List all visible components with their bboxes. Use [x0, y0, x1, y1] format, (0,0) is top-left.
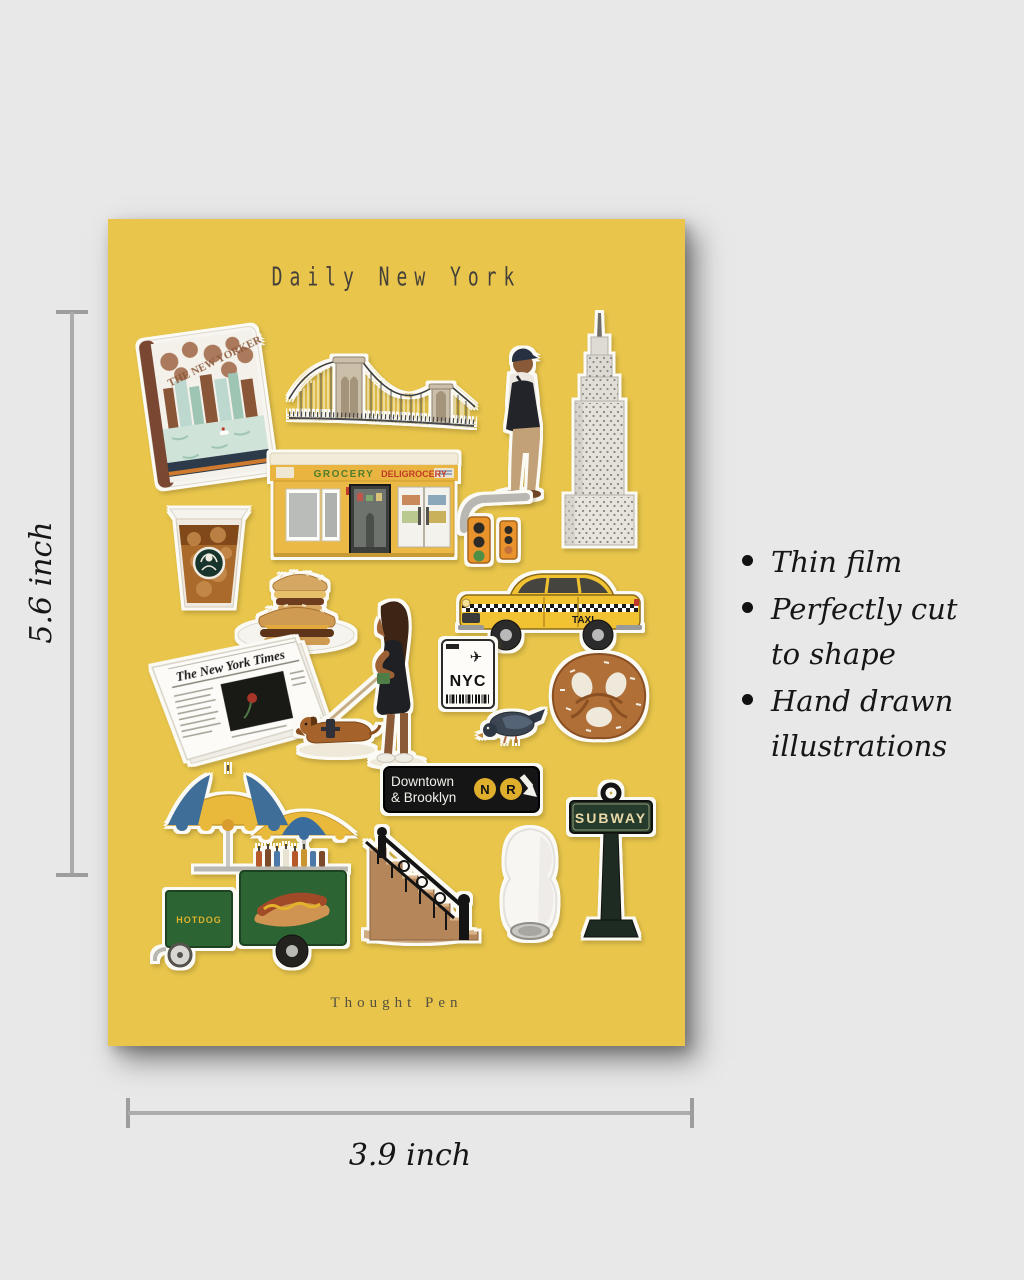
height-dimension: 5.6 inch	[0, 310, 96, 877]
deli-grocery-sign: GROCERY	[314, 469, 375, 480]
bullet-dot	[742, 555, 753, 566]
dimension-line	[70, 312, 74, 875]
feature-item: Hand drawn illustrations	[742, 679, 982, 769]
deli-grocery-sticker: GROCERY DELIGROCERY	[266, 449, 462, 563]
pretzel-sticker	[546, 648, 652, 745]
width-label: 3.9 inch	[126, 1138, 694, 1173]
dimension-line	[128, 1111, 692, 1115]
pigeon-sticker	[476, 698, 548, 745]
new-yorker-magazine-sticker: THE NEW YORKER	[136, 323, 278, 490]
feature-item: Thin film	[742, 540, 982, 585]
product-listing-image: Daily New York	[0, 0, 1024, 1280]
empire-state-building-sticker	[560, 311, 638, 549]
paper-cup-sticker	[490, 823, 570, 950]
height-label: 5.6 inch	[24, 299, 59, 866]
deli-deligrocery-sign: DELIGROCERY	[381, 469, 447, 479]
airplane-icon: ✈	[470, 648, 483, 666]
cart-hotdog-label: HOTDOG	[176, 915, 222, 925]
subway-sign-line1: Downtown	[391, 774, 454, 789]
poster-title-text: Daily New York	[272, 262, 522, 292]
brownstone-stairs-sticker	[356, 808, 482, 945]
subway-post-label: SUBWAY	[575, 810, 647, 826]
woman-walking-dog-sticker	[293, 588, 442, 770]
subway-post-sticker: SUBWAY	[560, 780, 662, 945]
route-r-bullet: R	[506, 782, 516, 797]
feature-text: Hand drawn illustrations	[771, 679, 982, 769]
feature-list: Thin film Perfectly cut to shape Hand dr…	[742, 540, 982, 771]
standing-man-sticker	[490, 345, 548, 501]
sticker-sheet-poster: Daily New York	[108, 219, 685, 1046]
dimension-cap	[690, 1098, 694, 1128]
feature-text: Thin film	[771, 540, 902, 585]
poster-title: Daily New York	[108, 267, 685, 288]
bullet-dot	[742, 694, 753, 705]
route-n-bullet: N	[480, 782, 489, 797]
feature-text: Perfectly cut to shape	[771, 587, 982, 677]
brooklyn-bridge-sticker	[286, 339, 478, 443]
feature-item: Perfectly cut to shape	[742, 587, 982, 677]
brand-name: Thought Pen	[108, 995, 685, 1012]
dimension-cap	[56, 873, 88, 877]
tag-city-code: NYC	[450, 673, 487, 690]
hot-dog-cart-sticker: HOTDOG	[136, 763, 360, 969]
subway-sign-line2: & Brooklyn	[391, 790, 456, 805]
width-dimension: 3.9 inch	[126, 1098, 694, 1128]
bullet-dot	[742, 602, 753, 613]
